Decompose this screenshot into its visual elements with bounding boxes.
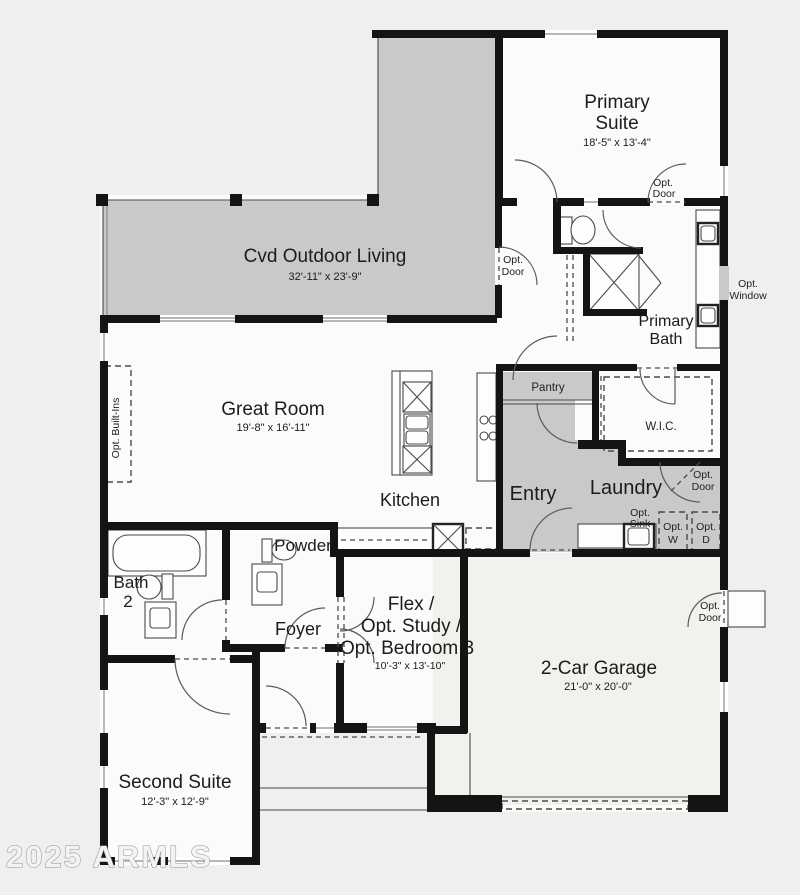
opt-door-outdoor-1: Opt. <box>503 254 523 266</box>
bath2-line1: Bath <box>114 573 149 592</box>
side-landing <box>728 591 765 627</box>
opt-door-top-label: Opt. Door <box>653 177 676 200</box>
primary-suite-line1: Primary <box>584 92 650 113</box>
foyer-label: Foyer <box>275 619 321 639</box>
flex-line2: Opt. Study / <box>361 616 462 637</box>
kitchen-sink-icon <box>404 414 430 446</box>
great-room-dims: 19'-8" x 16'-11" <box>237 422 310 434</box>
opt-dryer-2: D <box>702 534 710 546</box>
garage-floor <box>433 553 720 805</box>
opt-window-glyph <box>719 266 729 300</box>
opt-dryer-1: Opt. <box>696 521 716 533</box>
garage-name: 2-Car Garage <box>541 658 657 679</box>
flex-line3: Opt. Bedroom 3 <box>340 638 474 659</box>
laundry-label: Laundry <box>590 477 662 499</box>
cvd-outdoor-dims: 32'-11" x 23'-9" <box>289 271 362 283</box>
primary-suite-line2: Suite <box>595 113 638 134</box>
opt-door-outdoor-2: Door <box>502 266 525 278</box>
garage-dims: 21'-0" x 20'-0" <box>564 681 632 693</box>
opt-window-2: Window <box>729 290 767 302</box>
cvd-outdoor-label: Cvd Outdoor Living <box>244 246 407 267</box>
opt-sink-2: Sink <box>630 518 651 530</box>
opt-door-garage-1: Opt. <box>700 600 720 612</box>
primary-bath-line1: Primary <box>638 313 693 330</box>
great-room-label: Great Room 19'-8" x 16'-11" <box>221 399 324 434</box>
primary-vanity-sinks <box>696 210 720 348</box>
armls-watermark: 2025 ARMLS <box>6 839 213 874</box>
opt-washer-2: W <box>668 534 678 546</box>
opt-door-laundry-2: Door <box>692 481 715 493</box>
opt-door-outdoor-label: Opt. Door <box>502 254 525 278</box>
primary-toilet-icon <box>560 216 595 244</box>
powder-label: Powder <box>274 536 332 555</box>
second-suite-dims: 12'-3" x 12'-9" <box>141 796 209 808</box>
opt-door-garage-2: Door <box>699 612 722 624</box>
primary-suite-dims: 18'-5" x 13'-4" <box>583 137 651 149</box>
pantry-label: Pantry <box>531 382 564 394</box>
opt-door-laundry-1: Opt. <box>693 469 713 481</box>
kitchen-label: Kitchen <box>380 490 440 510</box>
kitchen-island <box>392 371 432 475</box>
opt-sink-label: Opt. Sink <box>630 507 651 530</box>
flex-dims: 10'-3" x 13'-10" <box>375 660 446 672</box>
great-room-name: Great Room <box>221 399 324 420</box>
bath2-line2: 2 <box>123 592 132 611</box>
wic-label: W.I.C. <box>645 421 676 433</box>
opt-washer-1: Opt. <box>663 521 683 533</box>
flex-line1: Flex / <box>388 594 435 615</box>
opt-door-laundry-label: Opt. Door <box>692 469 715 493</box>
entry-label: Entry <box>510 483 557 505</box>
floor-plan-drawing: Primary Suite 18'-5" x 13'-4" Cvd Outdoo… <box>0 0 800 895</box>
opt-built-ins-label: Opt. Built-Ins <box>110 398 122 459</box>
opt-door-top-2: Door <box>653 188 676 200</box>
opt-window-1: Opt. <box>738 278 758 290</box>
cooktop-icon <box>477 373 497 481</box>
primary-bath-line2: Bath <box>650 331 683 348</box>
floor-plan-page: Primary Suite 18'-5" x 13'-4" Cvd Outdoo… <box>0 0 800 895</box>
opt-door-garage-label: Opt. Door <box>699 600 722 624</box>
second-suite-name: Second Suite <box>118 772 231 793</box>
